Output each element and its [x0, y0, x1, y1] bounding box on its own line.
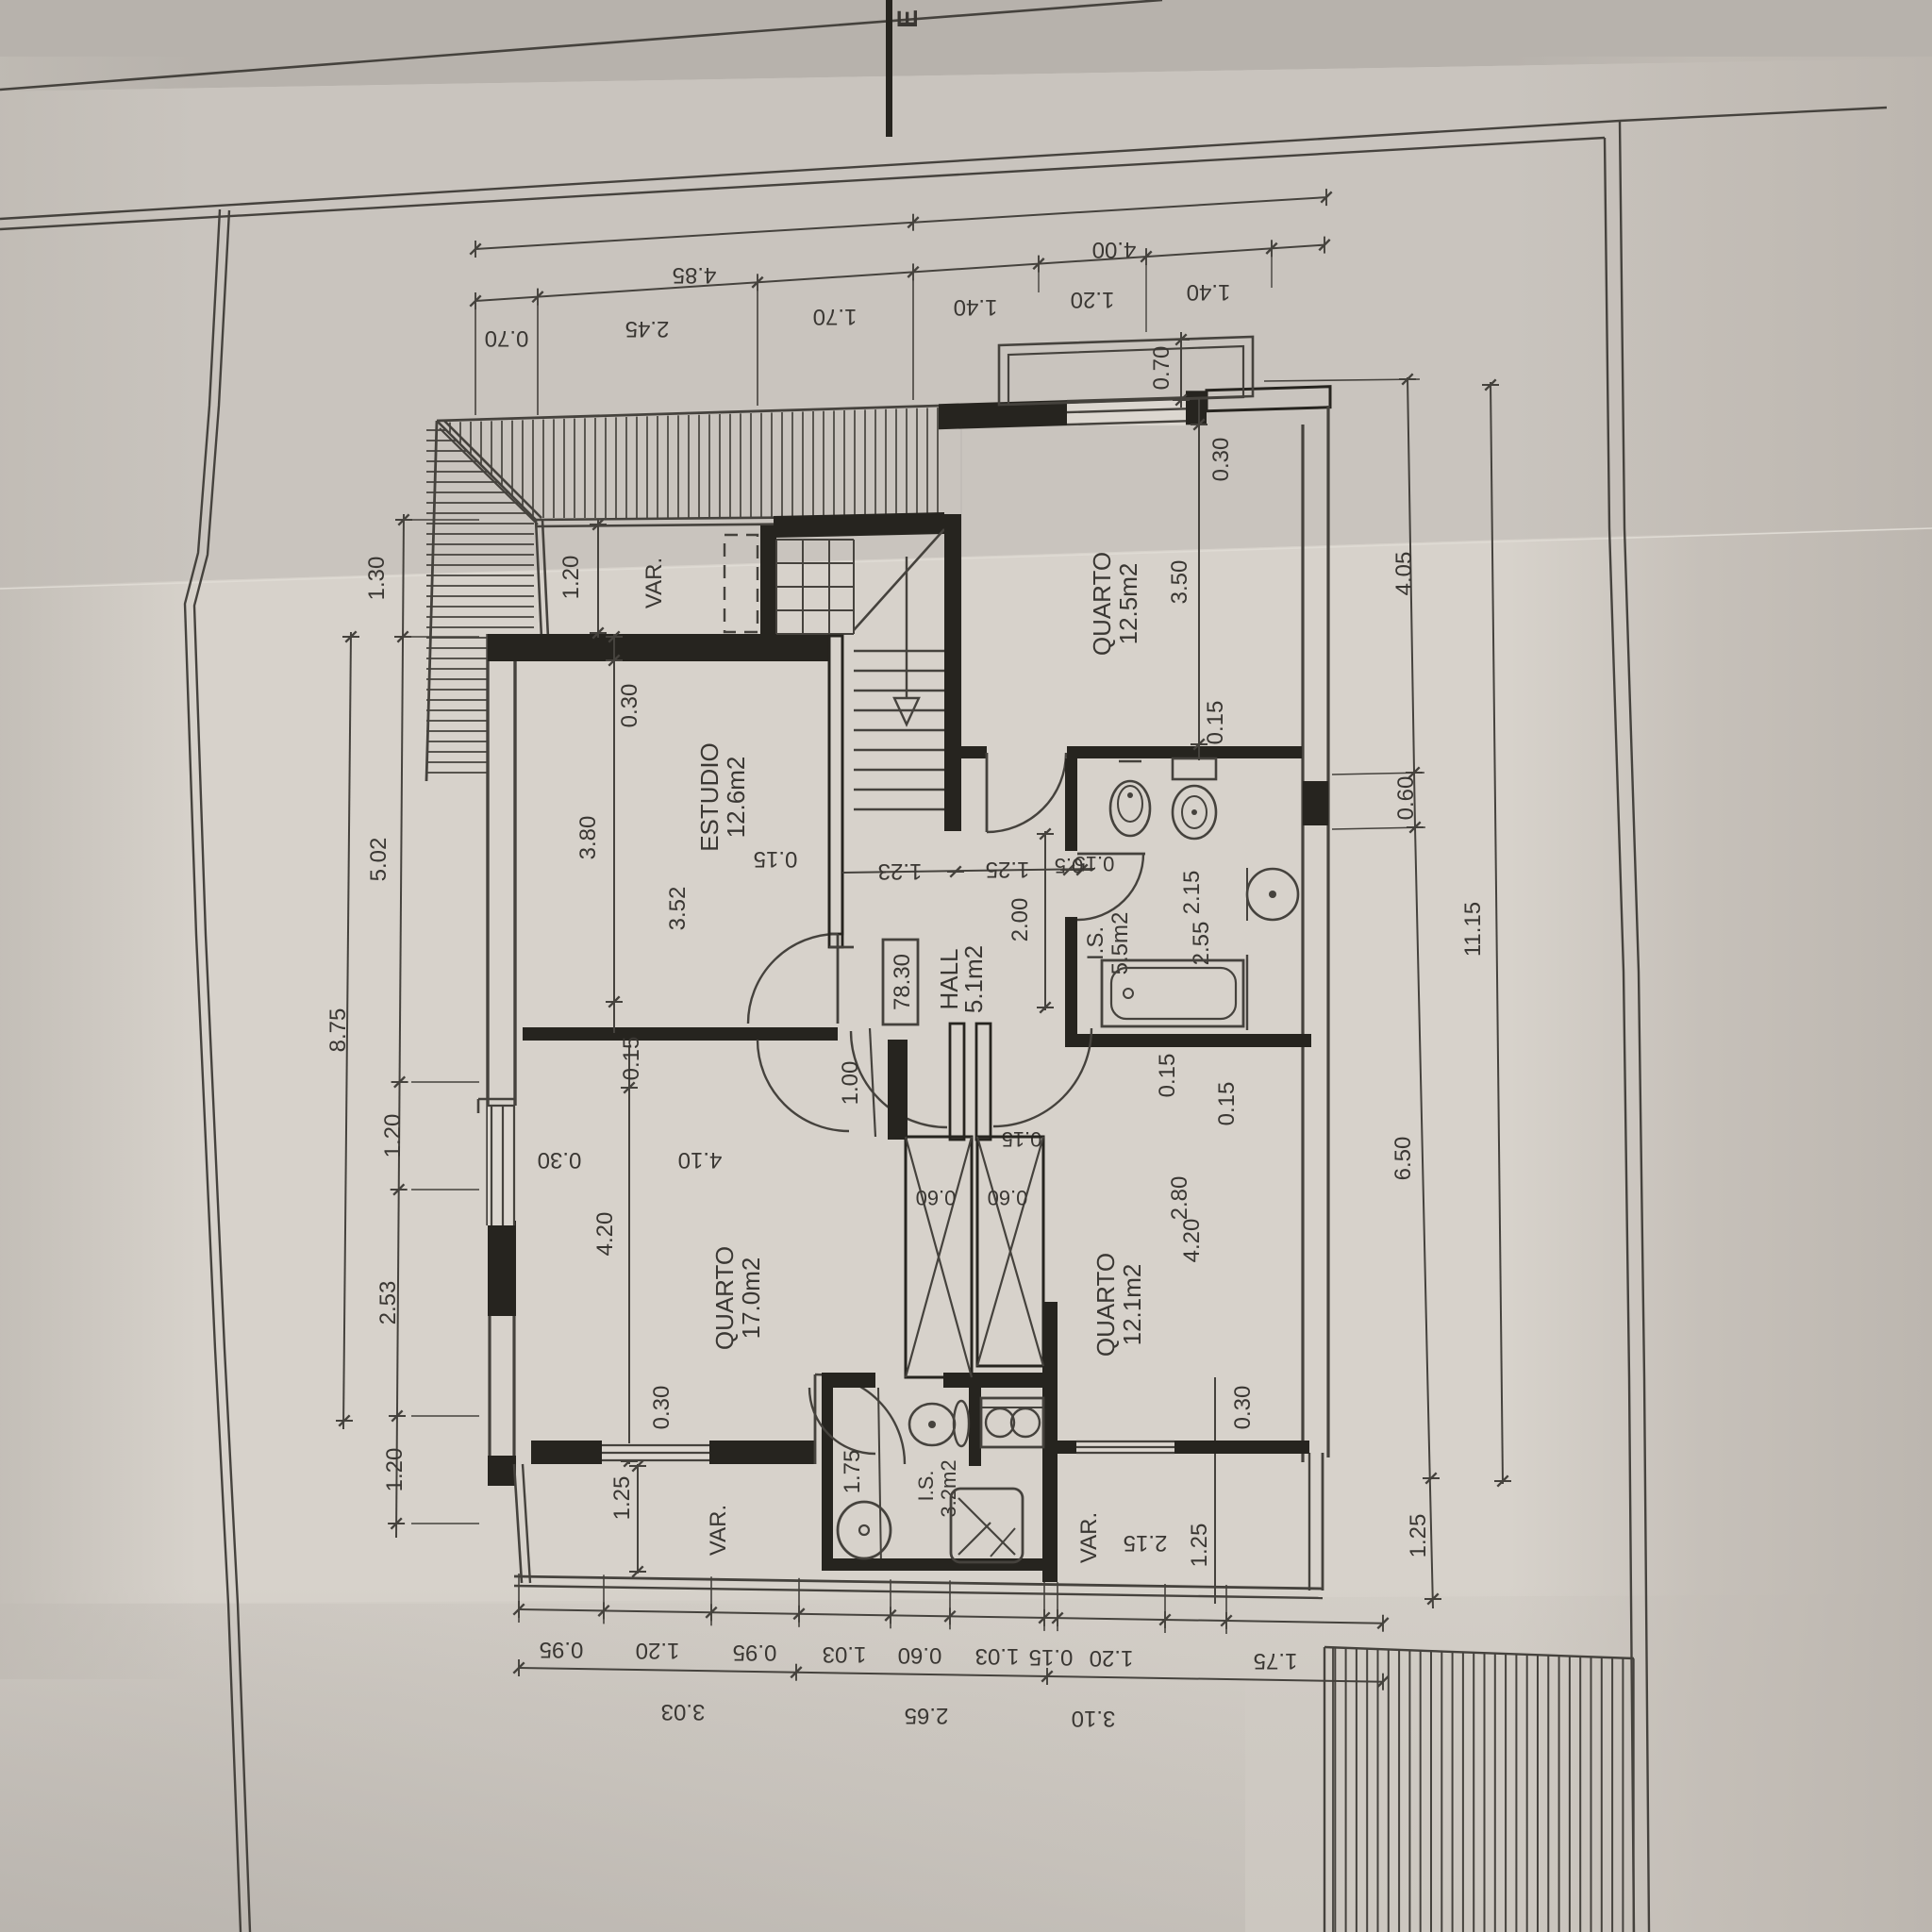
svg-text:4.05: 4.05	[1391, 552, 1417, 596]
svg-text:0.60: 0.60	[988, 1186, 1028, 1209]
svg-text:0.30: 0.30	[1208, 438, 1234, 482]
svg-text:2.55: 2.55	[1189, 922, 1214, 966]
svg-text:1.25: 1.25	[609, 1476, 635, 1521]
svg-text:1.75: 1.75	[1254, 1648, 1298, 1674]
svg-text:VAR.: VAR.	[641, 558, 667, 608]
svg-text:1.25: 1.25	[1406, 1514, 1431, 1558]
svg-text:1.75: 1.75	[840, 1450, 865, 1494]
svg-text:4.85: 4.85	[673, 262, 717, 288]
svg-text:0.60: 0.60	[1393, 776, 1419, 821]
svg-text:6.50: 6.50	[1391, 1137, 1416, 1181]
svg-text:1.40: 1.40	[1187, 279, 1231, 305]
svg-text:1.20: 1.20	[636, 1638, 680, 1663]
svg-text:1.20: 1.20	[380, 1114, 406, 1158]
svg-text:0.95: 0.95	[733, 1640, 777, 1665]
svg-text:0.70: 0.70	[485, 325, 529, 351]
svg-text:QUARTO: QUARTO	[1088, 552, 1116, 656]
svg-text:I.S.: I.S.	[914, 1470, 938, 1501]
svg-text:E: E	[892, 9, 924, 28]
svg-text:0.95: 0.95	[540, 1637, 584, 1662]
svg-text:4.10: 4.10	[678, 1147, 723, 1173]
svg-text:4.20: 4.20	[1179, 1219, 1205, 1263]
svg-text:0.60: 0.60	[898, 1642, 942, 1668]
svg-text:0.30: 0.30	[649, 1386, 675, 1430]
svg-text:2.15: 2.15	[1179, 871, 1205, 915]
svg-text:2.53: 2.53	[375, 1281, 401, 1325]
svg-text:1.20: 1.20	[382, 1448, 408, 1492]
svg-text:1.25: 1.25	[1187, 1524, 1212, 1568]
svg-text:12.1m2: 12.1m2	[1118, 1264, 1146, 1346]
svg-text:3.03: 3.03	[661, 1699, 706, 1724]
svg-text:4.20: 4.20	[592, 1212, 618, 1257]
svg-text:5.5m2: 5.5m2	[1108, 912, 1133, 975]
svg-text:0.70: 0.70	[1149, 346, 1174, 391]
svg-text:17.0m2: 17.0m2	[737, 1257, 765, 1340]
svg-text:1.00: 1.00	[838, 1061, 863, 1106]
svg-text:1.30: 1.30	[364, 557, 390, 601]
svg-text:VAR.: VAR.	[706, 1505, 731, 1556]
svg-text:3.50: 3.50	[1167, 560, 1192, 605]
svg-text:12.6m2: 12.6m2	[722, 757, 750, 839]
svg-text:VAR.: VAR.	[1076, 1512, 1102, 1563]
svg-text:1.70: 1.70	[813, 304, 858, 329]
svg-text:2.80: 2.80	[1167, 1176, 1192, 1221]
svg-text:2.00: 2.00	[1008, 898, 1033, 942]
svg-text:12.5m2: 12.5m2	[1114, 563, 1142, 645]
svg-text:2.45: 2.45	[625, 316, 670, 341]
svg-text:I.S.: I.S.	[1083, 926, 1108, 960]
svg-text:3.52: 3.52	[665, 887, 691, 931]
svg-text:0.15: 0.15	[1029, 1644, 1074, 1670]
svg-text:0.15: 0.15	[1214, 1082, 1240, 1126]
svg-text:3.10: 3.10	[1072, 1706, 1116, 1731]
svg-text:0.15: 0.15	[754, 846, 798, 872]
svg-text:5.1m2: 5.1m2	[959, 945, 988, 1013]
svg-text:0.15: 0.15	[1002, 1127, 1042, 1151]
svg-text:2.15: 2.15	[1124, 1530, 1168, 1556]
svg-text:QUARTO: QUARTO	[710, 1246, 739, 1350]
svg-text:78.30: 78.30	[890, 954, 915, 1010]
svg-text:1.20: 1.20	[1071, 287, 1115, 312]
svg-text:1.40: 1.40	[954, 294, 998, 320]
svg-text:0.30: 0.30	[1230, 1386, 1256, 1430]
svg-text:3.80: 3.80	[575, 816, 601, 860]
svg-text:0.60: 0.60	[916, 1186, 957, 1209]
svg-text:2.65: 2.65	[905, 1703, 949, 1728]
svg-text:1.03: 1.03	[823, 1641, 867, 1667]
svg-text:0.15: 0.15	[1074, 852, 1115, 875]
svg-text:1.20: 1.20	[1090, 1645, 1134, 1671]
svg-text:0.30: 0.30	[538, 1147, 582, 1173]
svg-text:0.15: 0.15	[1155, 1054, 1180, 1098]
svg-text:0.15: 0.15	[619, 1037, 644, 1081]
svg-text:8.75: 8.75	[325, 1008, 351, 1053]
svg-text:1.03: 1.03	[975, 1643, 1020, 1669]
svg-text:1.25: 1.25	[986, 857, 1030, 882]
svg-text:11.15: 11.15	[1460, 902, 1486, 957]
svg-text:0.30: 0.30	[617, 684, 642, 728]
svg-text:5.02: 5.02	[366, 838, 391, 882]
svg-text:1.20: 1.20	[558, 556, 584, 600]
svg-text:0.15: 0.15	[1203, 701, 1228, 745]
svg-text:ESTUDIO: ESTUDIO	[695, 742, 724, 852]
svg-text:QUARTO: QUARTO	[1091, 1253, 1120, 1357]
svg-text:1.23: 1.23	[878, 858, 923, 884]
